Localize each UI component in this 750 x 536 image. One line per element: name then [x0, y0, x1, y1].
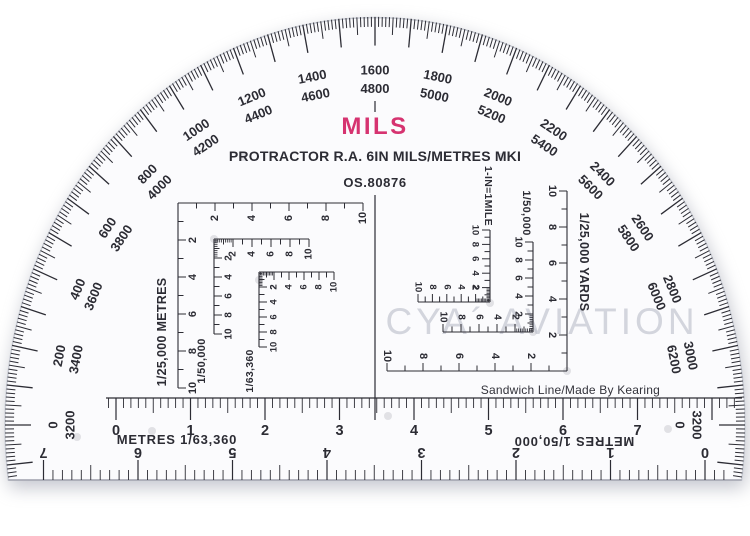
- mils-tick: [350, 18, 351, 28]
- scale-e-number: 2: [513, 311, 524, 317]
- scale-d-number: 2: [525, 353, 537, 359]
- scale-d-number: 4: [489, 353, 501, 360]
- scale-b-number: 2: [224, 255, 235, 261]
- arc-label-alt: 3200: [63, 411, 78, 440]
- scale-f-number: 2: [470, 285, 481, 290]
- scale-c-label: 1/63,360: [244, 349, 256, 392]
- scale-e-number: 10: [513, 236, 524, 248]
- scale-f-number: 4: [456, 284, 467, 290]
- mils-tick: [346, 18, 347, 28]
- scale-b-number: 8: [285, 251, 296, 257]
- scale-e-number: 10: [438, 311, 449, 323]
- ruler-bottom-number: 7: [39, 444, 47, 460]
- mils-tick: [396, 18, 397, 28]
- arc-label-alt: 0: [673, 421, 688, 428]
- scale-b-number: 4: [247, 251, 258, 257]
- scale-c-number: 10: [269, 342, 280, 353]
- scale-f-number: 8: [470, 242, 481, 247]
- scale-d-number: 8: [417, 353, 429, 359]
- mils-tick: [6, 452, 15, 453]
- arc-label-mils: 1600: [361, 62, 390, 77]
- ruler-top-number: 4: [410, 423, 418, 439]
- scale-b-number: 10: [304, 248, 315, 260]
- ruler-50000-caption: METRES 1/50,000: [514, 434, 634, 449]
- scale-a-number: 2: [209, 215, 221, 221]
- registration-dot: [664, 425, 672, 433]
- scale-a-number: 4: [246, 214, 258, 221]
- scale-a-label: 1/25,000 METRES: [155, 278, 169, 387]
- ruler-bottom-number: 4: [323, 444, 331, 460]
- scale-c-number: 4: [284, 284, 295, 290]
- mils-tick: [6, 401, 15, 402]
- scale-f-number: 6: [470, 256, 481, 261]
- scale-d-number: 8: [546, 224, 558, 230]
- scale-d-label: 1/25,000 YARDS: [577, 213, 591, 312]
- scale-b-number: 10: [224, 328, 235, 340]
- scale-e-number: 4: [513, 293, 524, 299]
- scale-e-label: 1/50,000: [520, 190, 532, 235]
- scale-f-number: 4: [470, 271, 481, 277]
- registration-dot: [384, 412, 392, 420]
- scale-d-number: 10: [381, 350, 393, 362]
- scale-a-number: 6: [187, 311, 199, 317]
- scale-d-number: 10: [546, 185, 558, 197]
- scale-e-number: 8: [513, 257, 524, 263]
- mils-tick: [735, 401, 744, 402]
- scale-c-number: 8: [314, 284, 325, 289]
- scale-e-number: 4: [492, 314, 503, 320]
- scale-f-number: 8: [427, 284, 438, 289]
- scale-b-label: 1/50,000: [196, 338, 208, 383]
- scale-f-number: 10: [413, 282, 424, 293]
- scale-a-number: 8: [320, 215, 332, 221]
- ruler-bottom-number: 0: [701, 444, 709, 460]
- scale-b-number: 6: [224, 293, 235, 299]
- scale-e-number: 6: [513, 275, 524, 281]
- scale-f-label: 1-IN=1MILE: [482, 166, 494, 226]
- scale-b-number: 8: [224, 312, 235, 318]
- mils-tick: [6, 397, 15, 398]
- scale-b-number: 4: [224, 274, 235, 280]
- ruler-top-number: 3: [335, 423, 343, 439]
- scale-d-number: 6: [453, 353, 465, 359]
- scale-a-number: 6: [283, 215, 295, 221]
- mils-heading: MILS: [341, 113, 408, 140]
- scale-f-number: 6: [441, 284, 452, 289]
- ruler-top-number: 5: [484, 423, 492, 439]
- scale-c-number: 6: [299, 284, 310, 289]
- ruler-top-number: 2: [261, 423, 269, 439]
- protractor-photo: CYA´ AVIATION 03200200340040036006003800…: [0, 0, 750, 536]
- mils-tick: [735, 448, 744, 449]
- watermark-text: CYA´ AVIATION: [385, 301, 698, 342]
- scale-a-number: 4: [187, 273, 199, 280]
- scale-a-number: 2: [187, 237, 199, 243]
- model-ref: OS.80876: [343, 175, 406, 190]
- arc-label-mils: 3200: [690, 411, 705, 440]
- arc-label-alt: 4800: [361, 81, 390, 96]
- scale-c-number: 10: [329, 282, 340, 293]
- ruler-63360-caption: METRES 1/63,360: [117, 432, 237, 447]
- protractor-title: PROTRACTOR R.A. 6IN MILS/METRES MKI: [229, 148, 521, 164]
- scale-c-number: 6: [269, 314, 280, 319]
- protractor-svg: CYA´ AVIATION 03200200340040036006003800…: [0, 0, 750, 536]
- scale-f-number: 10: [470, 225, 481, 236]
- mils-tick: [403, 18, 404, 28]
- scale-b-number: 6: [266, 251, 277, 257]
- ruler-bottom-number: 3: [417, 444, 425, 460]
- scale-e-number: 8: [456, 314, 467, 320]
- mils-tick: [6, 448, 15, 449]
- mils-tick: [735, 452, 744, 453]
- scale-d-number: 6: [546, 260, 558, 266]
- scale-a-number: 10: [357, 212, 369, 224]
- scale-d-number: 4: [546, 296, 558, 303]
- arc-label-mils: 0: [46, 421, 61, 428]
- scale-e-number: 6: [474, 314, 485, 320]
- mils-tick: [353, 18, 354, 28]
- scale-c-number: 8: [269, 329, 280, 334]
- scale-c-number: 4: [269, 299, 280, 305]
- mils-tick: [400, 18, 401, 28]
- scale-d-number: 2: [546, 332, 558, 338]
- scale-c-number: 2: [269, 284, 280, 289]
- maker-credit: Sandwich Line/Made By Kearing: [481, 383, 660, 397]
